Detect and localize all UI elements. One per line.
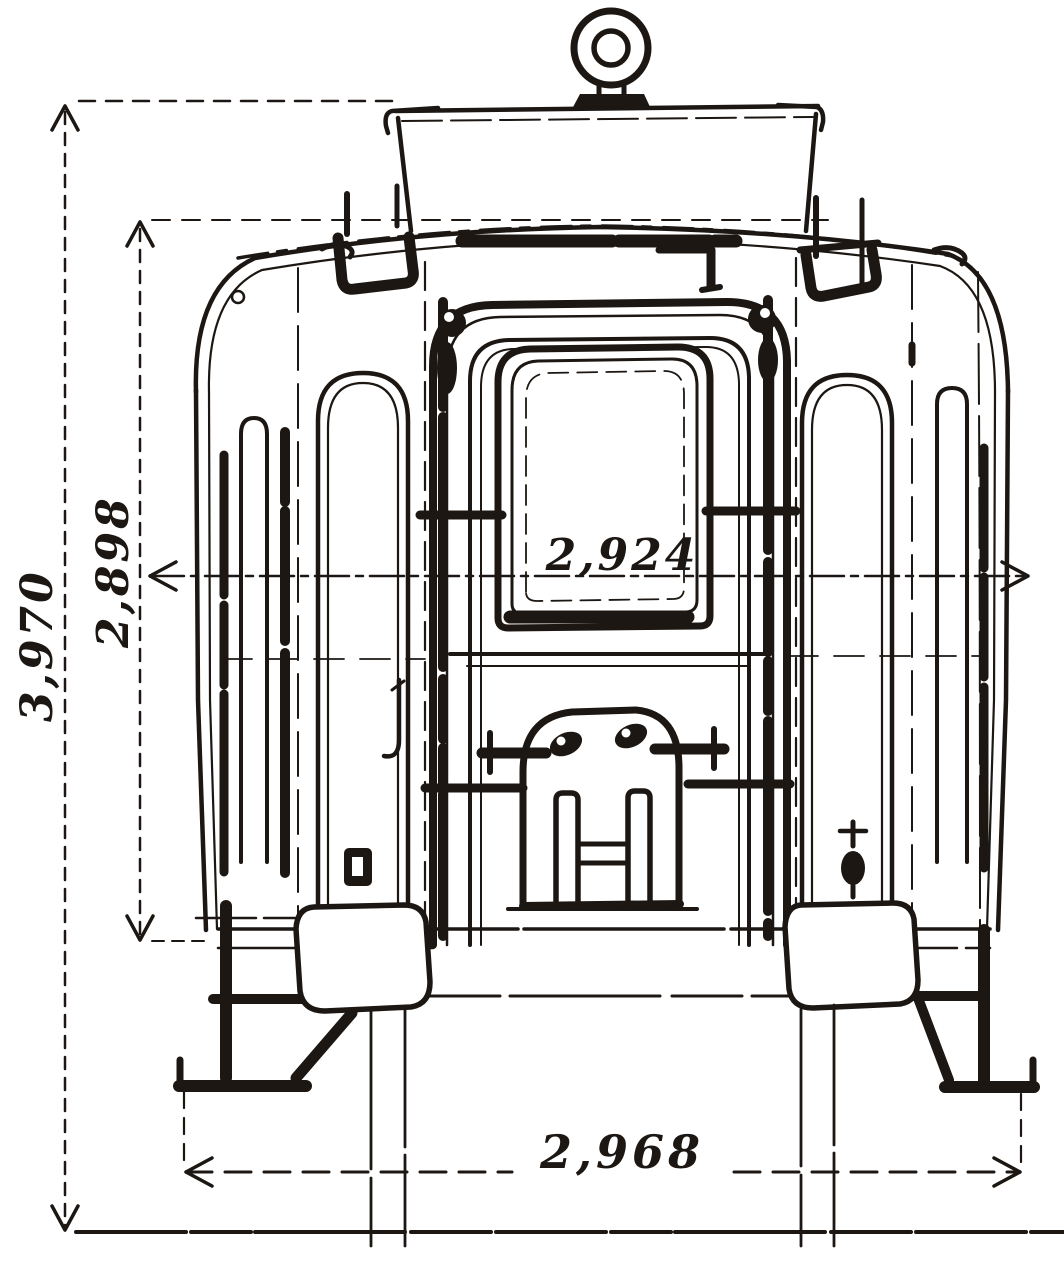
brake-cock [840, 822, 866, 897]
roof-bracket-center [659, 250, 720, 290]
coupler-eye-right [611, 719, 651, 753]
buffer-left [296, 905, 430, 1011]
dimension-label-step-width: 2,968 [539, 1125, 704, 1179]
lamp-iron-right [800, 198, 878, 296]
coupler-eye-left [546, 727, 586, 761]
door-window [498, 347, 710, 628]
side-panels-right [802, 375, 967, 931]
carriage-end-drawing: 3,970 2,898 2,924 2,968 [0, 0, 1064, 1277]
dimension-label-body-width: 2,924 [545, 530, 699, 581]
step-right [918, 930, 1034, 1087]
window-left [318, 373, 408, 931]
hook-detail [384, 680, 399, 756]
rivet-hole [232, 291, 244, 303]
clerestory [386, 105, 824, 231]
dimension-overall-height: 3,970 [12, 101, 392, 1230]
buffers [296, 903, 918, 1246]
coupling-gear [508, 710, 697, 909]
window-right [802, 375, 892, 931]
ventilator [572, 11, 651, 109]
dimension-label-cornice-height: 2,898 [88, 495, 139, 649]
dimension-step-width: 2,968 [184, 1092, 1021, 1186]
side-panels-left [241, 373, 408, 931]
roof [196, 226, 1008, 392]
lamp-socket [344, 848, 372, 886]
drawing-page: 3,970 2,898 2,924 2,968 [0, 0, 1064, 1277]
buffer-right [785, 903, 918, 1008]
dimension-label-overall-height: 3,970 [12, 569, 63, 722]
